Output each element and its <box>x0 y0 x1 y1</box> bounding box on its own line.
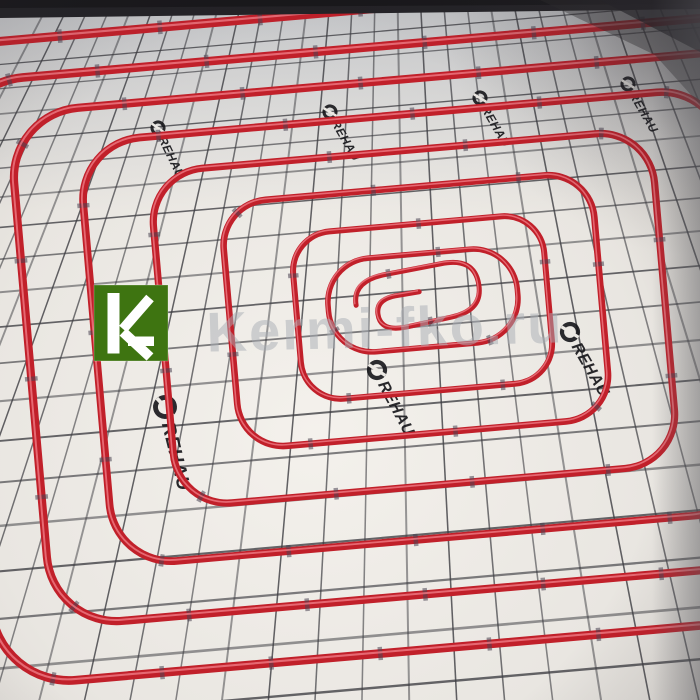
kermi-logo-middle-arm <box>128 337 154 347</box>
photo-canvas: REHAUREHAUREHAUREHAUREHAUREHAUREHAU Kerm… <box>0 0 700 700</box>
kermi-logo <box>94 285 168 361</box>
watermark-text: Kermi-fko.ru <box>206 291 564 363</box>
underfloor-heating-photo: REHAUREHAUREHAUREHAUREHAUREHAUREHAU Kerm… <box>0 0 700 700</box>
kermi-logo-bar <box>108 293 120 354</box>
